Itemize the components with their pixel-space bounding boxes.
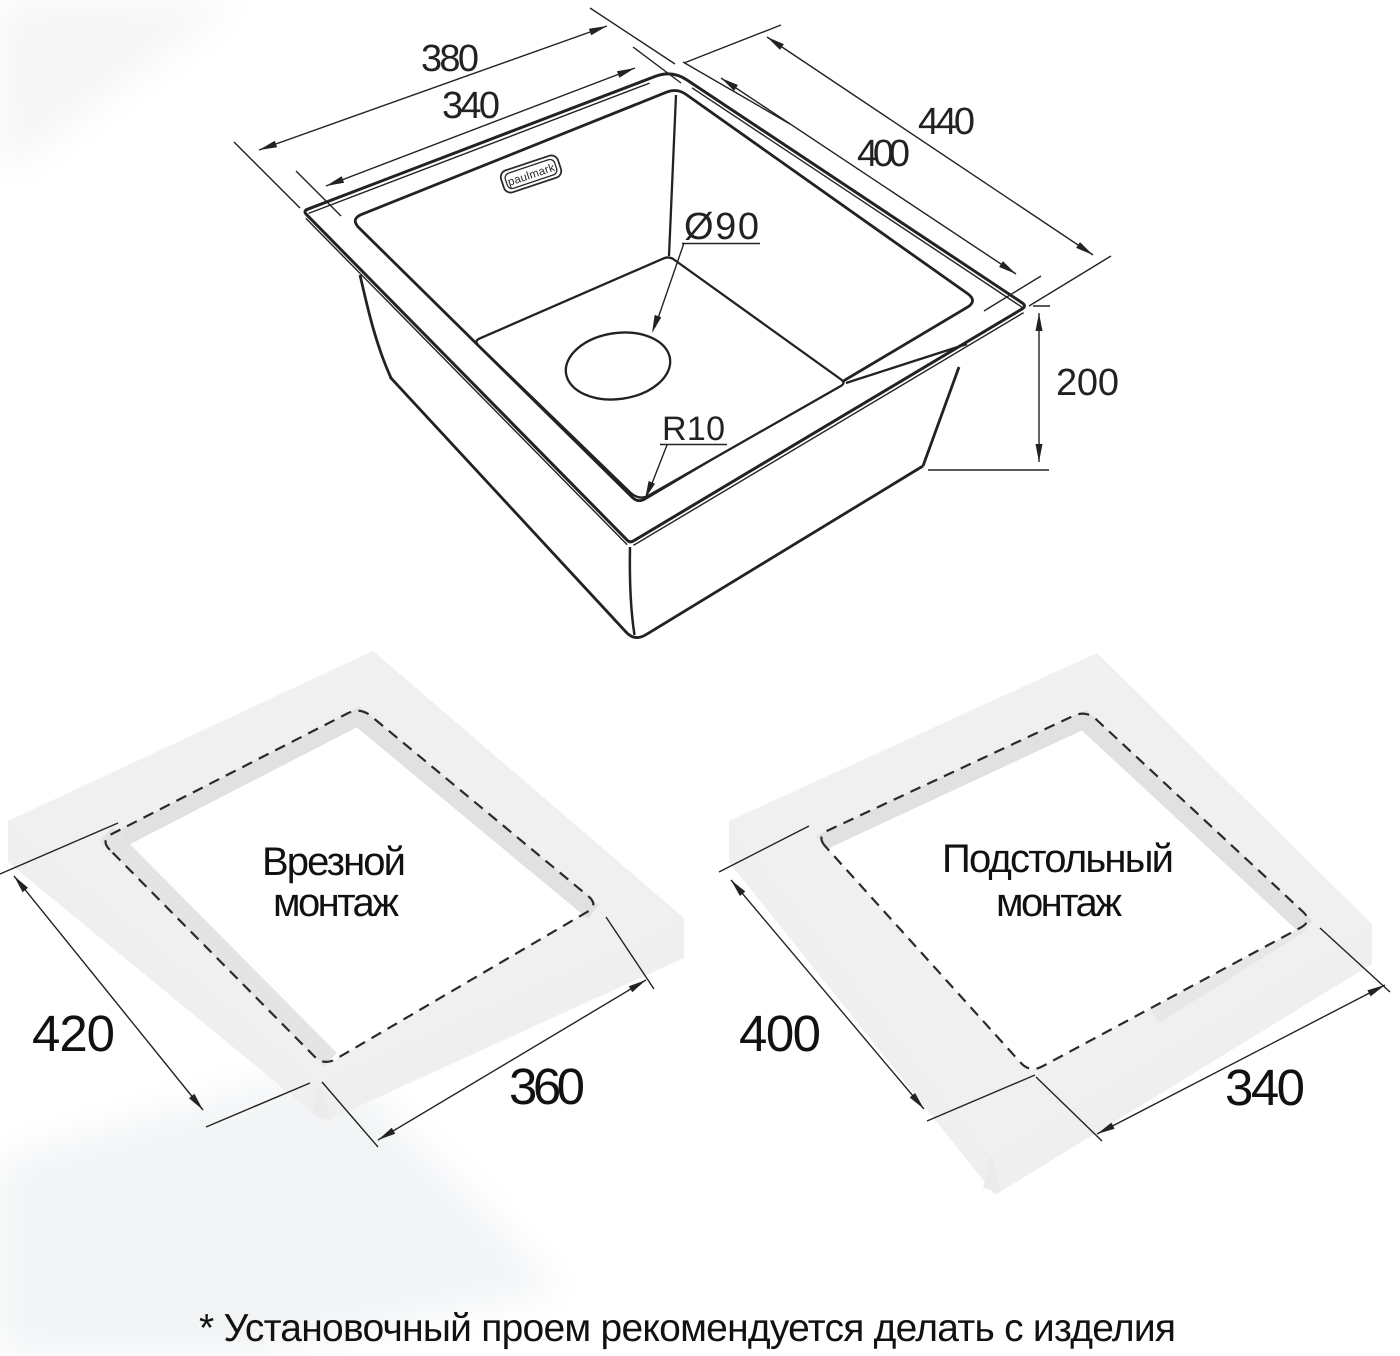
svg-text:монтаж: монтаж: [996, 881, 1122, 925]
svg-text:400: 400: [739, 1005, 821, 1062]
svg-text:420: 420: [32, 1005, 115, 1062]
svg-text:Подстольный: Подстольный: [942, 837, 1174, 881]
svg-text:360: 360: [509, 1058, 585, 1115]
svg-text:340: 340: [442, 85, 500, 127]
svg-text:380: 380: [421, 38, 479, 80]
svg-text:* Установочный проем рекоменду: * Установочный проем рекомендуется делат…: [199, 1307, 1176, 1350]
svg-text:Врезной: Врезной: [262, 840, 406, 884]
svg-text:R10: R10: [662, 410, 725, 448]
svg-text:монтаж: монтаж: [273, 881, 399, 925]
svg-text:400: 400: [857, 133, 910, 175]
svg-text:200: 200: [1056, 362, 1119, 404]
svg-text:340: 340: [1225, 1059, 1305, 1116]
svg-text:440: 440: [918, 101, 975, 143]
svg-text:Ø90: Ø90: [684, 206, 759, 248]
